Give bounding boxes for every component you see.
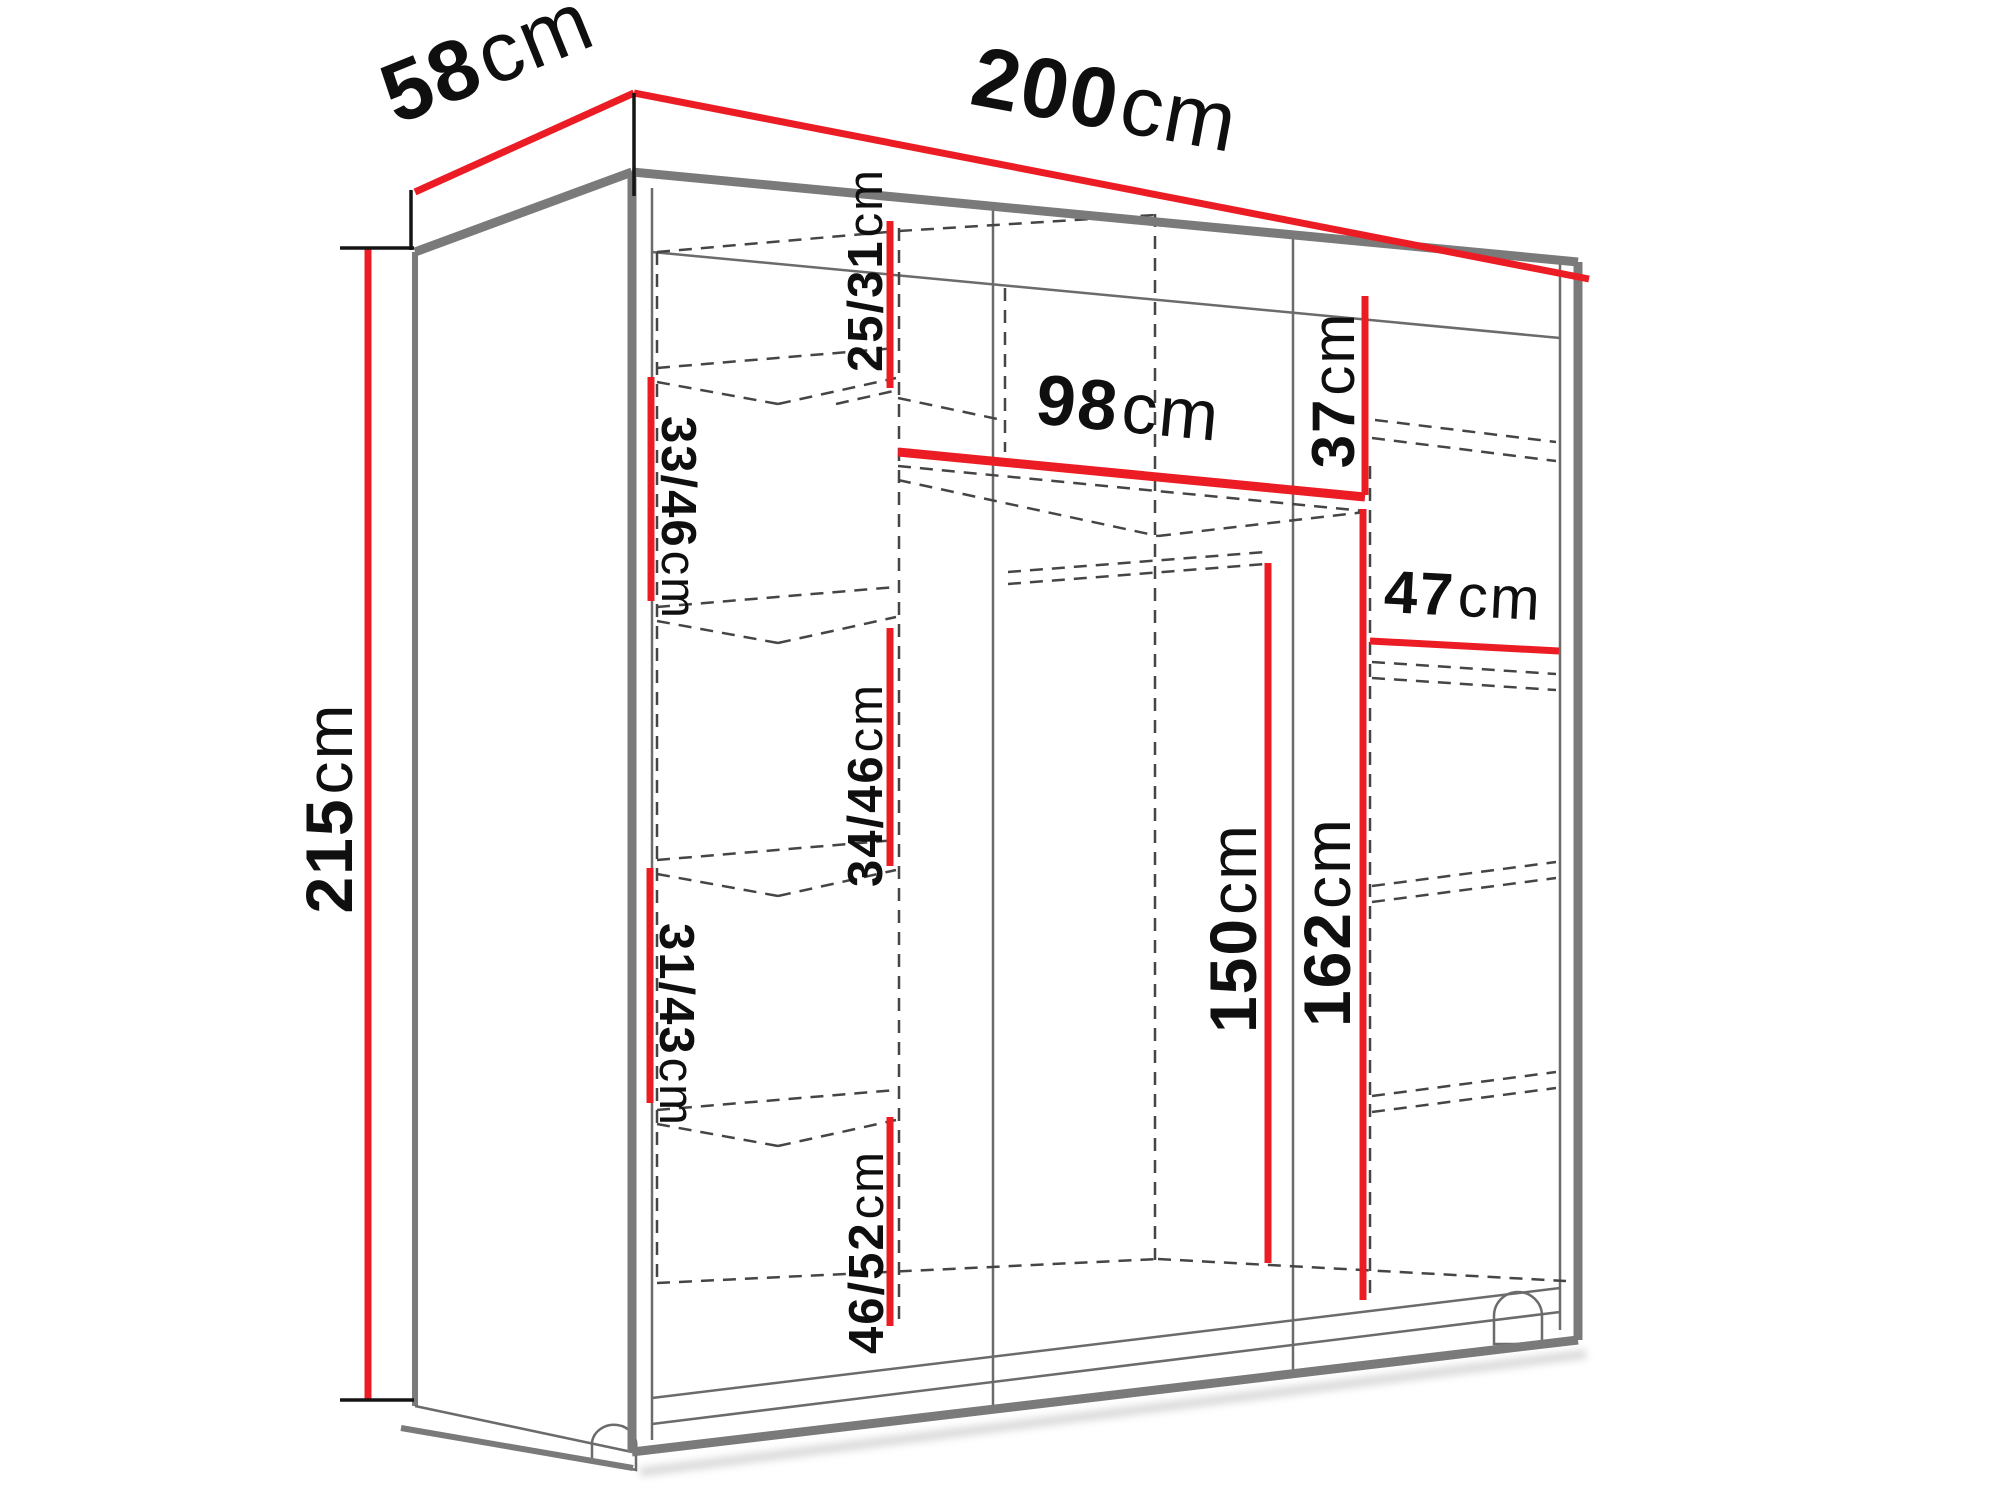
label-47cm: 47cm (1383, 558, 1544, 633)
label-162cm: 162cm (1290, 817, 1364, 1027)
label-33-46cm: 33/46cm (651, 416, 705, 620)
label-46-52cm: 46/52cm (840, 1150, 894, 1354)
wardrobe-dimension-diagram: 58cm 200cm 215cm 25/31cm 33/46cm 98cm 37… (0, 0, 2000, 1500)
label-37cm: 37cm (1300, 312, 1367, 469)
label-height-215cm: 215cm (292, 702, 366, 913)
label-34-46cm: 34/46cm (839, 683, 893, 887)
diagram-canvas: 58cm 200cm 215cm 25/31cm 33/46cm 98cm 37… (0, 0, 2000, 1500)
label-25-31cm: 25/31cm (839, 168, 893, 372)
front-face (632, 172, 1578, 1452)
wardrobe-body (401, 172, 1590, 1472)
label-150cm: 150cm (1196, 823, 1270, 1033)
label-31-43cm: 31/43cm (649, 923, 703, 1127)
side-face (415, 172, 632, 1452)
label-width-200cm: 200cm (965, 29, 1246, 171)
